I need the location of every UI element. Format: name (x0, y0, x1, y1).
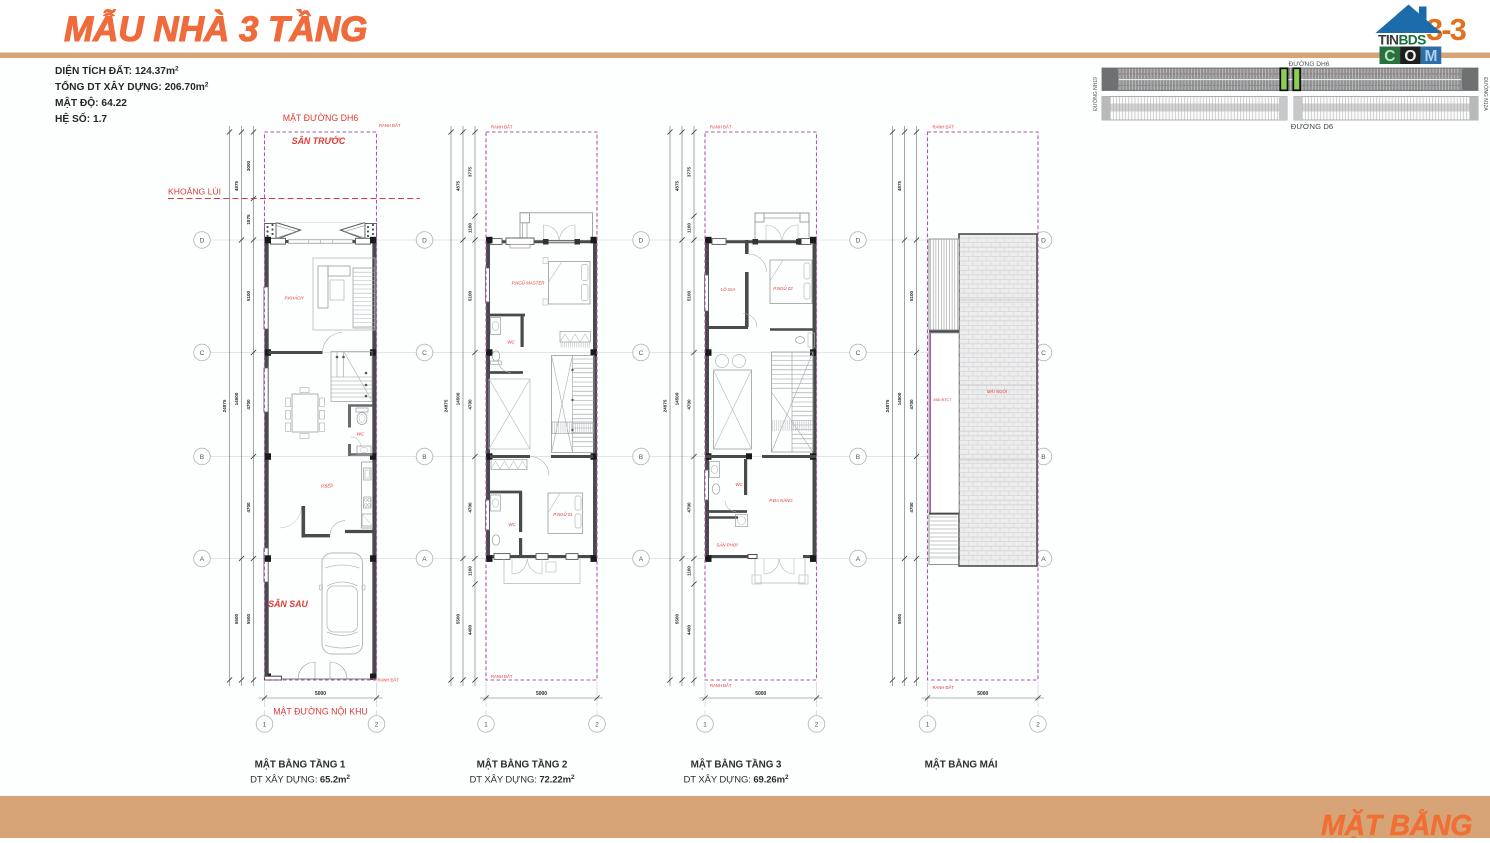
svg-text:14500: 14500 (675, 392, 680, 405)
svg-text:2: 2 (1036, 721, 1040, 728)
svg-text:4700: 4700 (687, 399, 692, 410)
svg-text:P.BẾP: P.BẾP (321, 484, 333, 489)
svg-text:ĐƯỜNG NH19: ĐƯỜNG NH19 (1092, 77, 1099, 111)
svg-text:A: A (422, 556, 427, 563)
svg-text:LÔ GIA: LÔ GIA (721, 287, 736, 292)
svg-text:A: A (639, 556, 644, 563)
svg-text:4700: 4700 (687, 502, 692, 513)
svg-text:RANH ĐẤT: RANH ĐẤT (710, 683, 732, 688)
svg-text:4700: 4700 (909, 399, 914, 410)
svg-text:MẬT BẰNG TẦNG 1: MẬT BẰNG TẦNG 1 (255, 759, 346, 771)
svg-text:5100: 5100 (909, 290, 914, 301)
svg-text:4400: 4400 (687, 624, 692, 635)
svg-text:D: D (422, 237, 427, 244)
svg-text:B: B (856, 454, 861, 461)
svg-text:5100: 5100 (687, 290, 692, 301)
svg-text:B: B (639, 454, 644, 461)
svg-text:MẶT BẰNG: MẶT BẰNG (1321, 810, 1472, 838)
svg-text:TINBDS: TINBDS (1378, 33, 1426, 48)
svg-text:RANH ĐẤT: RANH ĐẤT (933, 125, 955, 130)
svg-text:1: 1 (484, 721, 488, 728)
svg-text:MẬT BẰNG TẦNG 3: MẬT BẰNG TẦNG 3 (691, 759, 782, 771)
svg-text:D: D (639, 237, 644, 244)
svg-text:2: 2 (815, 721, 819, 728)
svg-text:C: C (1041, 350, 1046, 357)
svg-text:1: 1 (926, 721, 930, 728)
svg-text:MÁI NGÓI: MÁI NGÓI (987, 389, 1008, 394)
svg-text:RANH ĐẤT: RANH ĐẤT (378, 678, 400, 683)
svg-text:5000: 5000 (315, 691, 326, 697)
svg-text:5100: 5100 (468, 290, 473, 301)
svg-text:SÂN SAU: SÂN SAU (268, 598, 308, 609)
svg-text:C: C (1384, 48, 1395, 65)
svg-text:HỆ SỐ: 1.7: HỆ SỐ: 1.7 (55, 111, 107, 125)
svg-text:SÂN TRƯỚC: SÂN TRƯỚC (292, 135, 346, 146)
svg-text:P.NGỦ MASTER: P.NGỦ MASTER (512, 281, 546, 286)
svg-text:P.ĐA NĂNG: P.ĐA NĂNG (769, 498, 793, 503)
svg-text:SÂN PHƠI: SÂN PHƠI (716, 543, 738, 548)
svg-text:5500: 5500 (246, 613, 251, 624)
svg-text:RANH ĐẤT: RANH ĐẤT (491, 125, 513, 130)
svg-text:B: B (422, 454, 427, 461)
svg-text:M: M (1425, 48, 1438, 65)
svg-text:ĐƯỜNG N12A: ĐƯỜNG N12A (1482, 77, 1489, 111)
svg-text:4875: 4875 (234, 180, 239, 191)
svg-text:24875: 24875 (222, 399, 227, 412)
svg-text:3775: 3775 (468, 166, 473, 177)
svg-text:B: B (1041, 454, 1046, 461)
svg-text:D: D (1041, 237, 1046, 244)
svg-text:C: C (422, 350, 427, 357)
svg-text:RANH ĐẤT: RANH ĐẤT (379, 123, 401, 128)
svg-text:5500: 5500 (675, 613, 680, 624)
svg-text:1100: 1100 (468, 566, 473, 576)
svg-text:DT XÂY DỰNG: 69.26m2: DT XÂY DỰNG: 69.26m2 (684, 774, 789, 786)
svg-text:P.KHÁCH: P.KHÁCH (285, 296, 305, 301)
svg-text:MẬT ĐƯỜNG NỘI KHU: MẬT ĐƯỜNG NỘI KHU (273, 707, 368, 717)
svg-text:1100: 1100 (468, 223, 473, 233)
svg-text:C: C (200, 350, 205, 357)
svg-text:4700: 4700 (468, 502, 473, 513)
svg-text:O: O (1404, 48, 1416, 65)
svg-text:14500: 14500 (897, 392, 902, 405)
svg-text:5100: 5100 (246, 290, 251, 301)
svg-text:ĐƯỜNG DH6: ĐƯỜNG DH6 (1289, 59, 1330, 68)
svg-text:A: A (1041, 556, 1046, 563)
svg-text:D: D (856, 237, 861, 244)
svg-text:5000: 5000 (755, 691, 766, 697)
svg-text:14500: 14500 (456, 392, 461, 405)
svg-text:DT XÂY DỰNG: 65.2m2: DT XÂY DỰNG: 65.2m2 (250, 774, 350, 786)
svg-text:3000: 3000 (246, 160, 251, 171)
svg-text:C: C (639, 350, 644, 357)
svg-text:KHOẢNG LÙI: KHOẢNG LÙI (168, 186, 221, 197)
svg-text:4700: 4700 (909, 502, 914, 513)
svg-text:RANH ĐẤT: RANH ĐẤT (491, 674, 513, 679)
svg-text:4700: 4700 (468, 399, 473, 410)
svg-text:MẬT ĐỘ: 64.22: MẬT ĐỘ: 64.22 (55, 96, 127, 109)
svg-text:MẬT BẰNG TẦNG 2: MẬT BẰNG TẦNG 2 (477, 759, 568, 771)
svg-text:DIỆN TÍCH ĐẤT: 124.37m2: DIỆN TÍCH ĐẤT: 124.37m2 (55, 64, 179, 77)
svg-text:1100: 1100 (687, 566, 692, 576)
svg-text:5500: 5500 (456, 613, 461, 624)
svg-text:5000: 5000 (977, 691, 988, 697)
svg-text:5500: 5500 (234, 613, 239, 624)
svg-text:RANH ĐẤT: RANH ĐẤT (710, 125, 732, 130)
svg-text:24875: 24875 (663, 399, 668, 412)
svg-text:4400: 4400 (468, 624, 473, 635)
svg-text:RANH ĐẤT: RANH ĐẤT (933, 685, 955, 690)
svg-text:TỔNG DT XÂY DỰNG: 206.70m2: TỔNG DT XÂY DỰNG: 206.70m2 (55, 80, 209, 93)
svg-text:WC: WC (508, 522, 516, 527)
svg-text:2: 2 (375, 721, 379, 728)
svg-text:4700: 4700 (246, 399, 251, 410)
svg-text:24875: 24875 (444, 399, 449, 412)
svg-text:D: D (200, 237, 205, 244)
svg-text:WC: WC (735, 482, 743, 487)
svg-text:DT XÂY DỰNG: 72.22m2: DT XÂY DỰNG: 72.22m2 (470, 774, 575, 786)
svg-text:A: A (856, 556, 861, 563)
svg-text:WC: WC (507, 340, 515, 345)
svg-text:4875: 4875 (897, 180, 902, 191)
svg-text:1100: 1100 (687, 223, 692, 233)
svg-text:P.NGỦ 01: P.NGỦ 01 (553, 512, 573, 517)
svg-text:5500: 5500 (897, 613, 902, 624)
svg-text:MẬT BẰNG MÁI: MẬT BẰNG MÁI (925, 759, 998, 771)
svg-text:WC: WC (357, 432, 365, 437)
svg-text:MÁI BTCT: MÁI BTCT (933, 397, 952, 402)
svg-text:4700: 4700 (246, 502, 251, 513)
svg-text:4875: 4875 (456, 180, 461, 191)
svg-text:24875: 24875 (885, 399, 890, 412)
svg-text:2: 2 (595, 721, 599, 728)
svg-text:C: C (856, 350, 861, 357)
svg-text:1875: 1875 (246, 214, 251, 225)
svg-text:A: A (200, 556, 205, 563)
svg-text:3775: 3775 (687, 166, 692, 177)
svg-text:ĐƯỜNG D6: ĐƯỜNG D6 (1291, 122, 1334, 131)
svg-text:MẪU NHÀ 3 TẦNG: MẪU NHÀ 3 TẦNG (64, 9, 367, 49)
svg-text:1: 1 (263, 721, 267, 728)
svg-text:MẬT ĐƯỜNG DH6: MẬT ĐƯỜNG DH6 (283, 113, 359, 123)
svg-text:B: B (200, 454, 205, 461)
svg-text:P.NGỦ 02: P.NGỦ 02 (773, 286, 793, 291)
svg-text:4875: 4875 (675, 180, 680, 191)
svg-text:1: 1 (703, 721, 707, 728)
svg-text:14500: 14500 (234, 392, 239, 405)
svg-text:5000: 5000 (536, 691, 547, 697)
